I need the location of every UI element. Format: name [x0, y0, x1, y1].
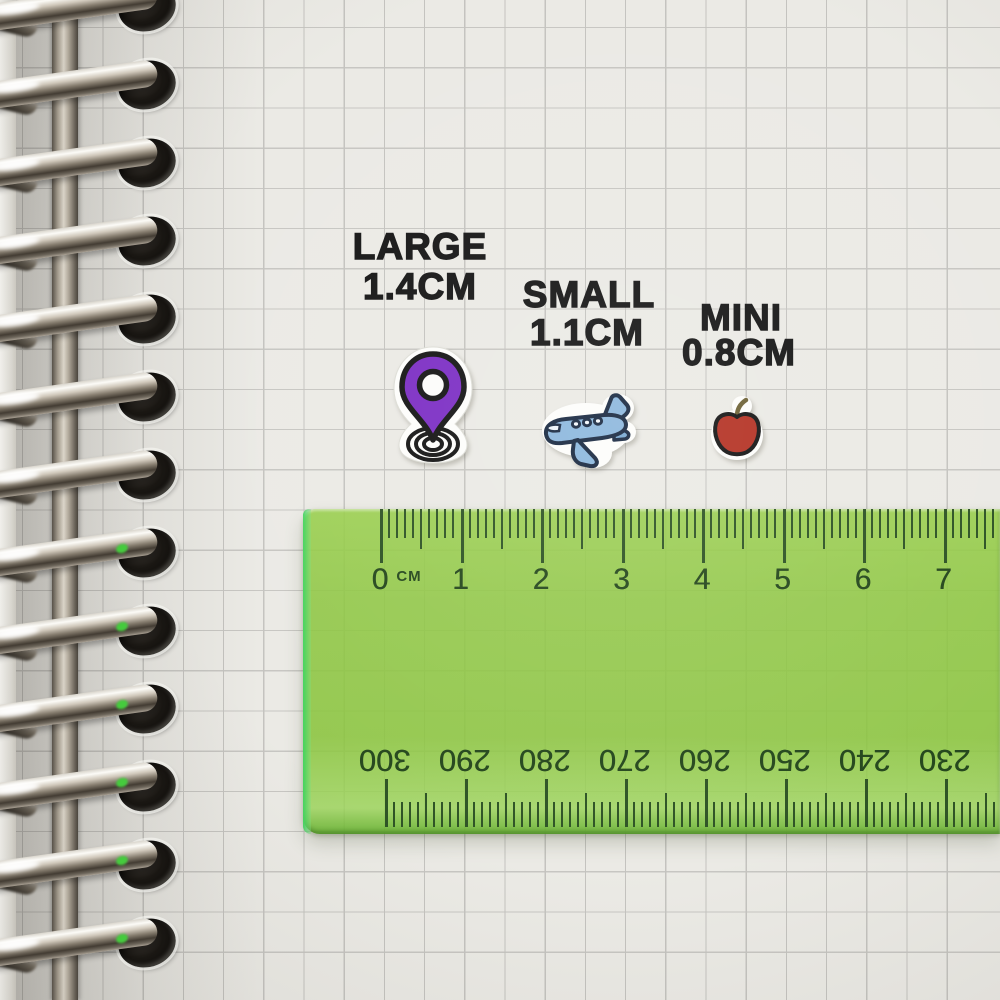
ruler-unit-label: CM [396, 568, 421, 585]
ruler-cm-number: 4 [694, 565, 711, 595]
binder-ring [0, 0, 210, 42]
ruler-mm-number: 250 [759, 745, 811, 776]
binder-ring [0, 206, 210, 276]
binder-ring [0, 596, 210, 666]
green-ruler: 01234567 CM 300290280270260250240230 [303, 509, 1000, 834]
ruler-mm-number: 240 [839, 745, 891, 776]
ruler-cm-number: 1 [452, 565, 469, 595]
ruler-mm-number: 290 [439, 745, 491, 776]
ruler-cm-number: 3 [613, 565, 630, 595]
ruler-cm-number: 6 [855, 565, 872, 595]
label-large: LARGE [353, 228, 488, 265]
pin-hole [420, 372, 447, 399]
binder-ring [0, 50, 210, 120]
ruler-mm-number: 300 [359, 745, 411, 776]
ruler-cm-number: 0 [372, 565, 389, 595]
location-pin-sticker [387, 344, 479, 466]
binder-ring [0, 830, 210, 900]
binder-ring [0, 908, 210, 978]
binder-ring [0, 128, 210, 198]
label-mini: MINI [700, 299, 782, 336]
ruler-mm-number: 230 [919, 745, 971, 776]
label-mini-size: 0.8CM [682, 334, 796, 371]
binder-ring [0, 752, 210, 822]
plane-nose-window [547, 425, 560, 432]
ruler-cm-number: 7 [935, 565, 952, 595]
ruler-mm-number: 270 [599, 745, 651, 776]
binder-ring [0, 362, 210, 432]
binder-ring [0, 674, 210, 744]
binder-ring [0, 440, 210, 510]
label-small: SMALL [523, 276, 655, 313]
label-small-size: 1.1CM [530, 314, 644, 351]
airplane-sticker [538, 392, 638, 470]
apple-sticker [710, 395, 764, 461]
ruler-mm-number: 260 [679, 745, 731, 776]
binder-ring [0, 518, 210, 588]
ruler-cm-number: 2 [533, 565, 550, 595]
binder-ring [0, 284, 210, 354]
ruler-mm-number: 280 [519, 745, 571, 776]
apple-body [715, 414, 759, 454]
label-large-size: 1.4CM [363, 268, 477, 305]
ruler-cm-number: 5 [774, 565, 791, 595]
